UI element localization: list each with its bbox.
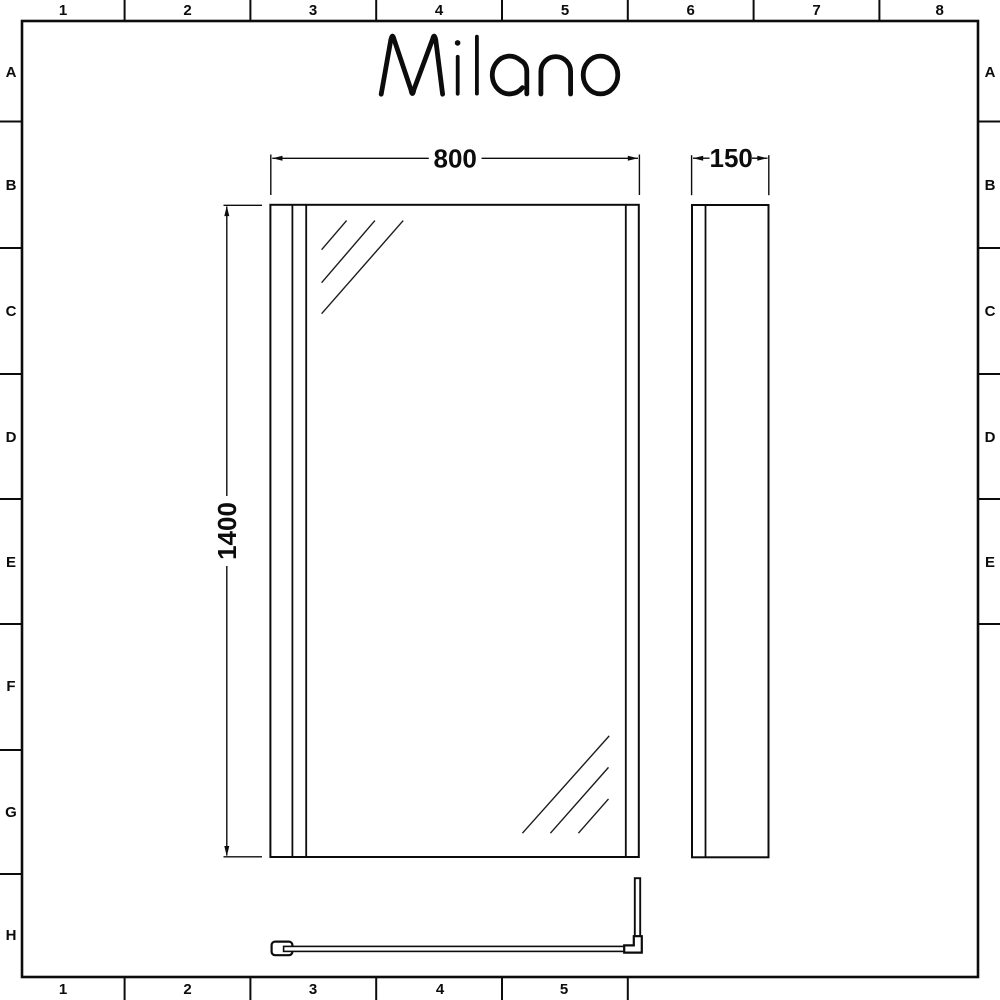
svg-text:3: 3 bbox=[309, 2, 317, 19]
svg-text:2: 2 bbox=[183, 2, 191, 19]
svg-text:1: 1 bbox=[59, 981, 67, 998]
svg-text:150: 150 bbox=[710, 143, 753, 173]
svg-text:4: 4 bbox=[435, 2, 444, 19]
svg-text:4: 4 bbox=[436, 981, 445, 998]
svg-text:D: D bbox=[985, 429, 996, 446]
svg-text:1: 1 bbox=[59, 2, 67, 19]
svg-text:E: E bbox=[985, 554, 995, 571]
svg-text:F: F bbox=[6, 678, 15, 695]
svg-text:2: 2 bbox=[183, 981, 191, 998]
svg-text:5: 5 bbox=[560, 981, 568, 998]
svg-text:A: A bbox=[6, 64, 17, 81]
svg-text:H: H bbox=[6, 927, 17, 944]
svg-text:C: C bbox=[985, 303, 996, 320]
svg-text:G: G bbox=[5, 804, 17, 821]
svg-text:6: 6 bbox=[687, 2, 695, 19]
svg-text:E: E bbox=[6, 554, 16, 571]
svg-text:A: A bbox=[985, 64, 996, 81]
svg-text:7: 7 bbox=[812, 2, 820, 19]
svg-text:8: 8 bbox=[936, 2, 944, 19]
svg-text:B: B bbox=[6, 177, 17, 194]
svg-text:D: D bbox=[6, 429, 17, 446]
svg-text:800: 800 bbox=[434, 143, 477, 173]
svg-text:1400: 1400 bbox=[212, 502, 242, 560]
svg-text:5: 5 bbox=[561, 2, 569, 19]
svg-text:3: 3 bbox=[309, 981, 317, 998]
svg-text:C: C bbox=[6, 303, 17, 320]
svg-text:B: B bbox=[985, 177, 996, 194]
